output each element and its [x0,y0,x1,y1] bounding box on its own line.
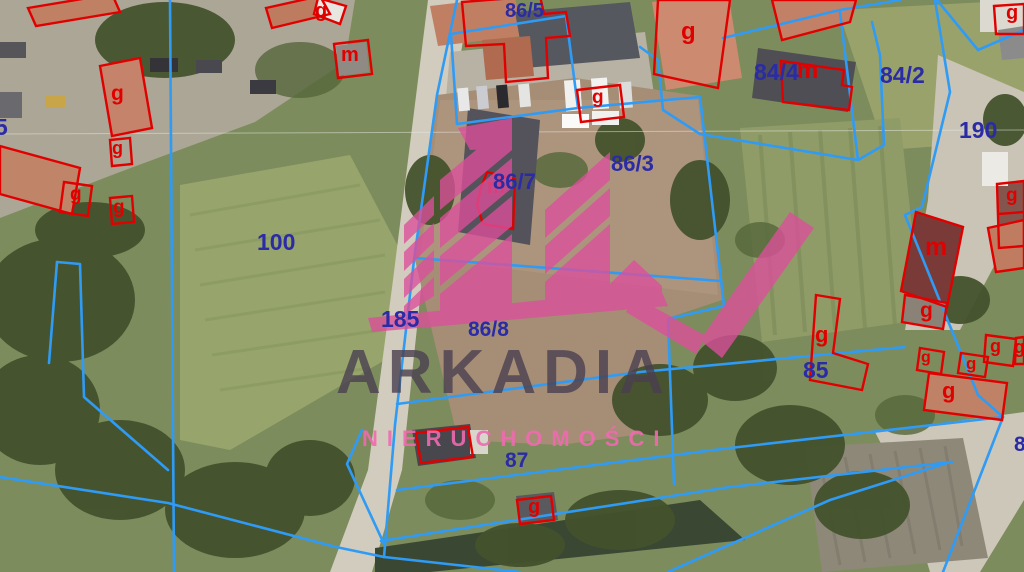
map-canvas[interactable]: g m g g g g g g m g g m g g m g g g g g … [0,0,1024,572]
parcel-label: 87 [505,450,528,471]
parcel-label: 190 [959,119,997,142]
parcel-label: 85 [803,359,829,382]
parcel-label: 84/4 [754,61,799,84]
parcel-label: 86/8 [468,319,509,340]
parcel-label: 8 [1014,434,1024,455]
parcel-label: 86/3 [611,153,654,175]
watermark-logo [0,0,1024,572]
parcel-label: 100 [257,231,295,254]
parcel-label: 84/2 [880,64,925,87]
parcel-label: 86/4 [474,0,513,4]
parcel-label: 5 [0,116,8,139]
parcel-label: 86/7 [493,171,536,193]
watermark-tagline-text: NIERUCHOMOŚCI [362,428,668,450]
parcel-label: 185 [381,308,419,331]
watermark-brand-text: ARKADIA [336,342,671,404]
